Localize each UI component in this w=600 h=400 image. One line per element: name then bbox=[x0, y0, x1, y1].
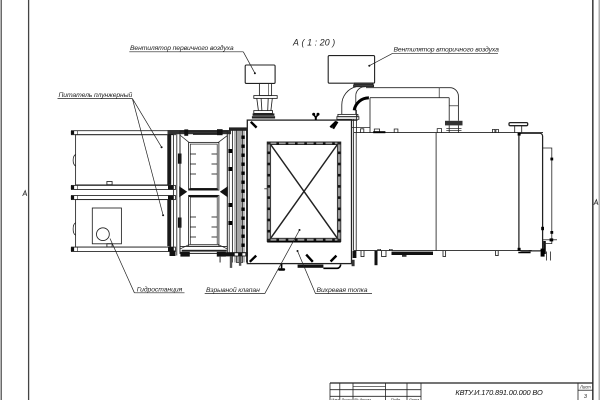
svg-text:КВТУ.И.170.891.00.000 ВО: КВТУ.И.170.891.00.000 ВО bbox=[455, 388, 543, 397]
svg-text:Питатель плунжерный: Питатель плунжерный bbox=[59, 91, 133, 99]
svg-text:Гидростанция: Гидростанция bbox=[137, 285, 183, 293]
svg-text:А ( 1 : 20 ): А ( 1 : 20 ) bbox=[292, 38, 335, 48]
svg-text:Вихревая топка: Вихревая топка bbox=[317, 287, 368, 294]
svg-text:Лист: Лист bbox=[579, 385, 591, 390]
svg-text:Взрывной клапан: Взрывной клапан bbox=[206, 286, 260, 294]
svg-text:Вентилятор вторичного воздуха: Вентилятор вторичного воздуха bbox=[394, 46, 500, 54]
svg-text:Вентилятор первичного воздуха: Вентилятор первичного воздуха bbox=[130, 44, 234, 52]
